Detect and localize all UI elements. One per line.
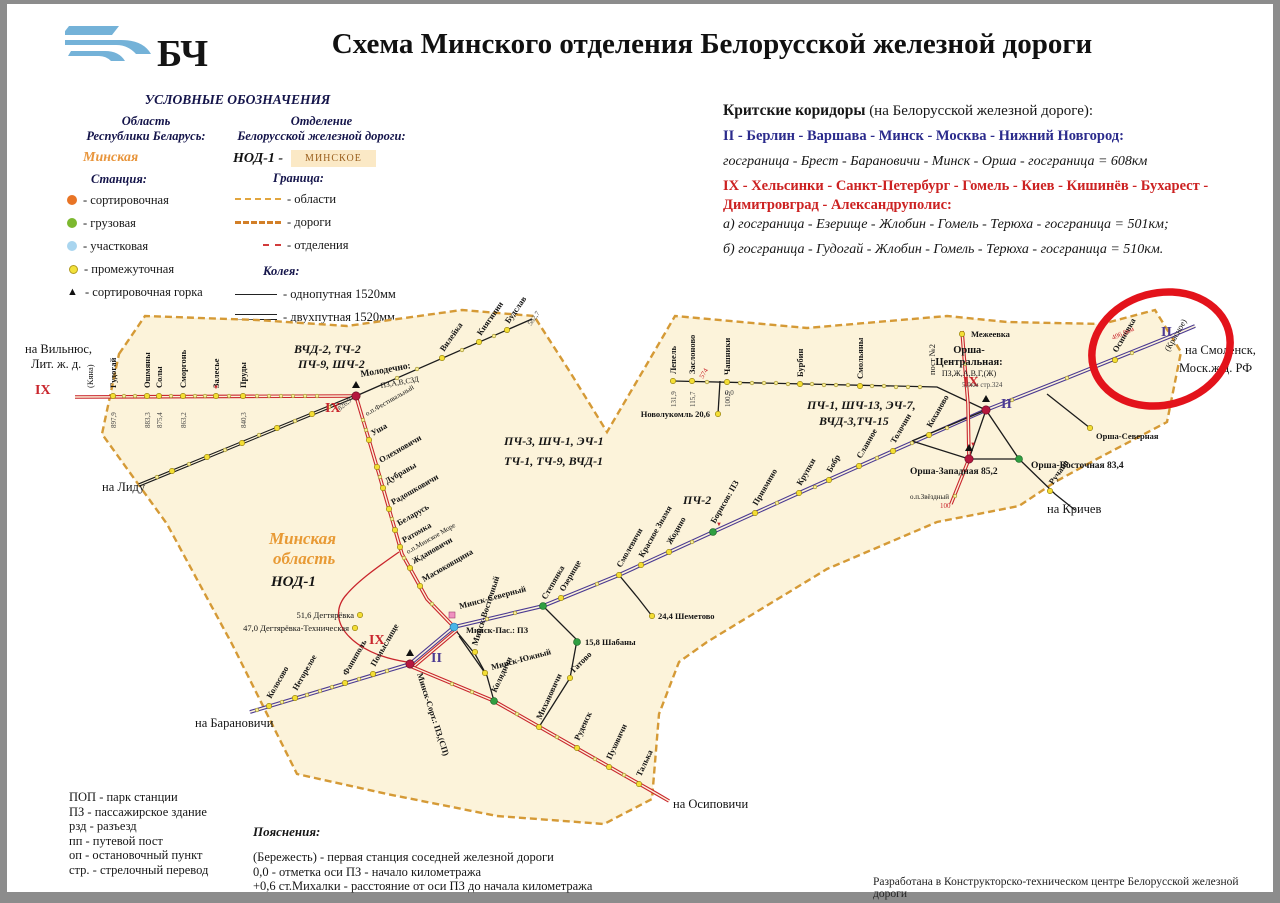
station-dot (280, 700, 284, 704)
station-dot (169, 468, 174, 473)
station-dot (513, 611, 517, 615)
map-label: II (431, 651, 442, 666)
station-dot (255, 708, 259, 712)
station-dot (305, 693, 309, 697)
station-dot (291, 394, 295, 398)
station-dot (374, 464, 379, 469)
station-dot (122, 394, 126, 398)
map-label: ТЧ-1, ТЧ-9, ВЧД-1 (504, 454, 603, 468)
abbr-str: стр. - стрелочный перевод (69, 863, 208, 878)
station-label: Межеевка (971, 329, 1011, 339)
station-dot (223, 448, 227, 452)
station-dot (638, 562, 643, 567)
abbreviations-block: ПОП - парк станции ПЗ - пассажирское зда… (69, 790, 208, 877)
station-label: Солы (154, 366, 164, 388)
map-label: II (1161, 325, 1172, 340)
station-dot (380, 485, 385, 490)
abbr-pop: ПОП - парк станции (69, 790, 208, 805)
map-label: 897,9 (110, 412, 118, 428)
station-dot (342, 680, 347, 685)
station-dot (689, 378, 694, 383)
station-dot (595, 582, 599, 586)
station-dot (738, 381, 742, 385)
station-dot (762, 381, 766, 385)
station-dot (906, 385, 910, 389)
station-dot (357, 612, 362, 617)
station-dot (450, 682, 454, 686)
station-dot (430, 602, 434, 606)
station-dot (515, 712, 519, 716)
map-label: на Лиду (102, 480, 146, 494)
station-dot (352, 392, 360, 400)
station-dot (875, 456, 879, 460)
station-dot (239, 440, 244, 445)
station-dot (407, 565, 412, 570)
station-dot (303, 394, 307, 398)
station-dot (1112, 357, 1117, 362)
station-dot (330, 685, 334, 689)
page: БЧ Схема Минского отделения Белорусской … (7, 4, 1273, 892)
map-label: ПЧ-9, ШЧ-2 (297, 357, 365, 371)
station-dot (540, 603, 547, 610)
station-dot (279, 394, 283, 398)
station-dot (392, 527, 397, 532)
station-dot (460, 348, 464, 352)
station-dot (666, 549, 671, 554)
station-dot (982, 406, 990, 414)
abbr-pp: пп - путевой пост (69, 834, 208, 849)
station-dot (110, 393, 115, 398)
station-dot (926, 432, 931, 437)
station-dot (318, 689, 322, 693)
map-label: область (273, 549, 336, 568)
map-label: ▼ (213, 385, 219, 391)
map-label: 131,9 (670, 391, 678, 407)
station-dot (204, 454, 209, 459)
station-dot (882, 384, 886, 388)
map-label: ПЧ-1, ШЧ-13, ЭЧ-7, (806, 398, 916, 412)
station-dot (918, 385, 922, 389)
station-dot (1016, 456, 1023, 463)
station-dot (364, 428, 368, 432)
map-label: на Осиповичи (673, 797, 748, 811)
station-dot (856, 463, 861, 468)
map-label: Орша- (953, 345, 985, 356)
station-dot (810, 382, 814, 386)
map-label: пост №2 (927, 344, 937, 375)
map-label: Центральная: (935, 357, 1002, 368)
station-dot (352, 625, 357, 630)
station-dot (890, 448, 895, 453)
map-label: Орша-Восточная 83,4 (1031, 461, 1124, 471)
station-dot (622, 773, 626, 777)
station-dot (415, 367, 419, 371)
map-label: НОД-1 (270, 574, 316, 590)
station-dot (406, 660, 414, 668)
station-dot (574, 745, 579, 750)
station-dot (774, 381, 778, 385)
station-dot (870, 384, 874, 388)
station-dot (439, 355, 444, 360)
station-dot (309, 411, 314, 416)
station-dot (144, 393, 149, 398)
station-dot (796, 490, 801, 495)
station-dot (402, 556, 406, 560)
station-dot (786, 382, 790, 386)
station-dot (255, 394, 259, 398)
station-dot (180, 393, 185, 398)
station-label: 24,4 Шеметово (658, 611, 715, 621)
notes-line: (Бережесть) - первая станция соседней же… (253, 850, 592, 865)
station-dot (797, 381, 802, 386)
notes-block: Пояснения: (Бережесть) - первая станция … (253, 824, 592, 894)
station-dot (857, 383, 862, 388)
station-dot (504, 327, 509, 332)
station-dot (213, 393, 218, 398)
station-dot (715, 411, 720, 416)
station-dot (292, 695, 297, 700)
map-label: ▼ (970, 442, 976, 448)
station-dot (834, 383, 838, 387)
station-dot (670, 378, 675, 383)
station-dot (133, 394, 137, 398)
station-dot (257, 433, 261, 437)
station-dot (366, 437, 371, 442)
station-dot (616, 572, 621, 577)
station-dot (156, 393, 161, 398)
map-label: IX (369, 633, 385, 648)
station-label: Смольяны (855, 337, 865, 379)
map-label: Лит. ж. д. (31, 357, 81, 371)
map-label: 100,5 (724, 391, 732, 407)
station-dot (574, 639, 581, 646)
station-label: 51,6 Дегтярёвка (297, 610, 355, 620)
station-label: о.п.Звёздный (910, 493, 949, 501)
station-dot (485, 617, 489, 621)
station-dot (1065, 376, 1069, 380)
station-label: Сморгонь (178, 349, 188, 388)
station-label: Бурбин (795, 348, 805, 377)
map-label: ВЧД-3,ТЧ-15 (818, 414, 889, 428)
station-label: Пруды (238, 362, 248, 388)
map-label: 115,7 (689, 391, 697, 407)
station-dot (193, 394, 197, 398)
notes-line: +0,6 ст.Михалки - расстояние от оси ПЗ д… (253, 879, 592, 894)
station-dot (690, 540, 694, 544)
station-dot (593, 757, 597, 761)
station-dot (567, 675, 572, 680)
map-label: ▼ (716, 522, 722, 528)
station-dot (293, 419, 297, 423)
station-dot (1047, 488, 1052, 493)
abbr-pz: ПЗ - пассажирское здание (69, 805, 208, 820)
station-dot (267, 394, 271, 398)
station-dot (959, 331, 964, 336)
station-dot (315, 394, 319, 398)
station-label: Новолукомль 20,6 (641, 409, 710, 419)
station-dot (227, 394, 231, 398)
station-dot (378, 475, 382, 479)
station-dot (449, 612, 455, 618)
station-dot (775, 501, 779, 505)
map-label: на Вильнюс, (25, 342, 92, 356)
station-dot (750, 381, 754, 385)
station-dot (370, 671, 375, 676)
station-dot (724, 379, 729, 384)
station-dot (965, 455, 973, 463)
station-dot (266, 703, 271, 708)
station-label: Залесье (211, 358, 221, 388)
map-label: ПЧ-3, ШЧ-1, ЭЧ-1 (503, 434, 604, 448)
station-dot (476, 339, 481, 344)
station-dot (826, 477, 831, 482)
map-label: на Кричев (1047, 502, 1101, 516)
station-dot (606, 764, 611, 769)
station-dot (390, 517, 394, 521)
station-dot (822, 383, 826, 387)
station-dot (492, 334, 496, 338)
station-dot (558, 595, 563, 600)
station-dot (482, 670, 487, 675)
map-label: 840,3 (240, 412, 248, 428)
station-dot (169, 394, 173, 398)
station-dot (274, 425, 279, 430)
station-dot (386, 506, 391, 511)
station-dot (945, 426, 949, 430)
notes-heading: Пояснения: (253, 824, 592, 840)
station-label: Ошмяны (142, 352, 152, 388)
map-label: 883,3 (144, 412, 152, 428)
station-dot (536, 724, 541, 729)
station-dot (953, 494, 957, 498)
map-label: ПЗ,Ж,А,В,Г,(Ж) (942, 369, 997, 378)
station-dot (491, 698, 498, 705)
station-dot (1087, 425, 1092, 430)
station-dot (385, 669, 389, 673)
station-dot (636, 781, 641, 786)
station-dot (397, 544, 402, 549)
station-label: Заслоново (687, 335, 697, 374)
station-dot (203, 394, 207, 398)
abbr-rzd: рзд - разъезд (69, 819, 208, 834)
map-label: 875,4 (156, 412, 164, 428)
station-dot (417, 583, 422, 588)
station-dot (357, 677, 361, 681)
abbr-op: оп - остановочный пункт (69, 848, 208, 863)
station-dot (649, 613, 654, 618)
station-dot (155, 475, 159, 479)
station-dot (450, 623, 458, 631)
station-label: Лепель (668, 346, 678, 374)
footer-credit: Разработана в Конструкторско-техническом… (873, 876, 1273, 900)
map-label: Минская (268, 529, 336, 548)
railway-map: (Кяна)ГудогайОшмяныСолыСморгоньЗалесьеПр… (7, 4, 1273, 892)
notes-line: 0,0 - отметка оси ПЗ - начало километраж… (253, 865, 592, 880)
station-label: 15,8 Шабаны (585, 637, 636, 647)
map-label: IX (35, 383, 51, 398)
station-dot (894, 385, 898, 389)
station-dot (910, 441, 914, 445)
map-label: на Смоленск, (1185, 343, 1256, 357)
station-dot (813, 485, 817, 489)
station-dot (710, 529, 717, 536)
station-dot (752, 510, 757, 515)
map-label: II (1001, 397, 1012, 412)
station-dot (187, 462, 191, 466)
station-dot (470, 690, 474, 694)
map-label: ВЧД-2, ТЧ-2 (293, 342, 361, 356)
station-dot (240, 393, 245, 398)
map-label: на Барановичи (195, 716, 274, 730)
screenshot-root: { "header": { "logo_text": "БЧ", "title"… (0, 0, 1280, 903)
map-label: 100 (940, 502, 951, 510)
station-label: 47,0 Дегтярёвка-Техническая (243, 623, 349, 633)
station-dot (555, 735, 559, 739)
map-label: 863,2 (180, 412, 188, 428)
station-label: Гудогай (108, 358, 118, 388)
station-label: Чашники (722, 338, 732, 375)
station-dot (472, 649, 477, 654)
map-label: 5,0км стр.324 (962, 381, 1003, 389)
station-label: Орша-Северная (1096, 431, 1159, 441)
station-label: (Кяна) (85, 364, 95, 388)
station-dot (1130, 351, 1134, 355)
station-dot (705, 380, 709, 384)
map-label: ПЧ-2 (682, 493, 711, 507)
station-dot (361, 418, 365, 422)
map-label: Орша-Западная 85,2 (910, 467, 998, 477)
station-dot (846, 383, 850, 387)
